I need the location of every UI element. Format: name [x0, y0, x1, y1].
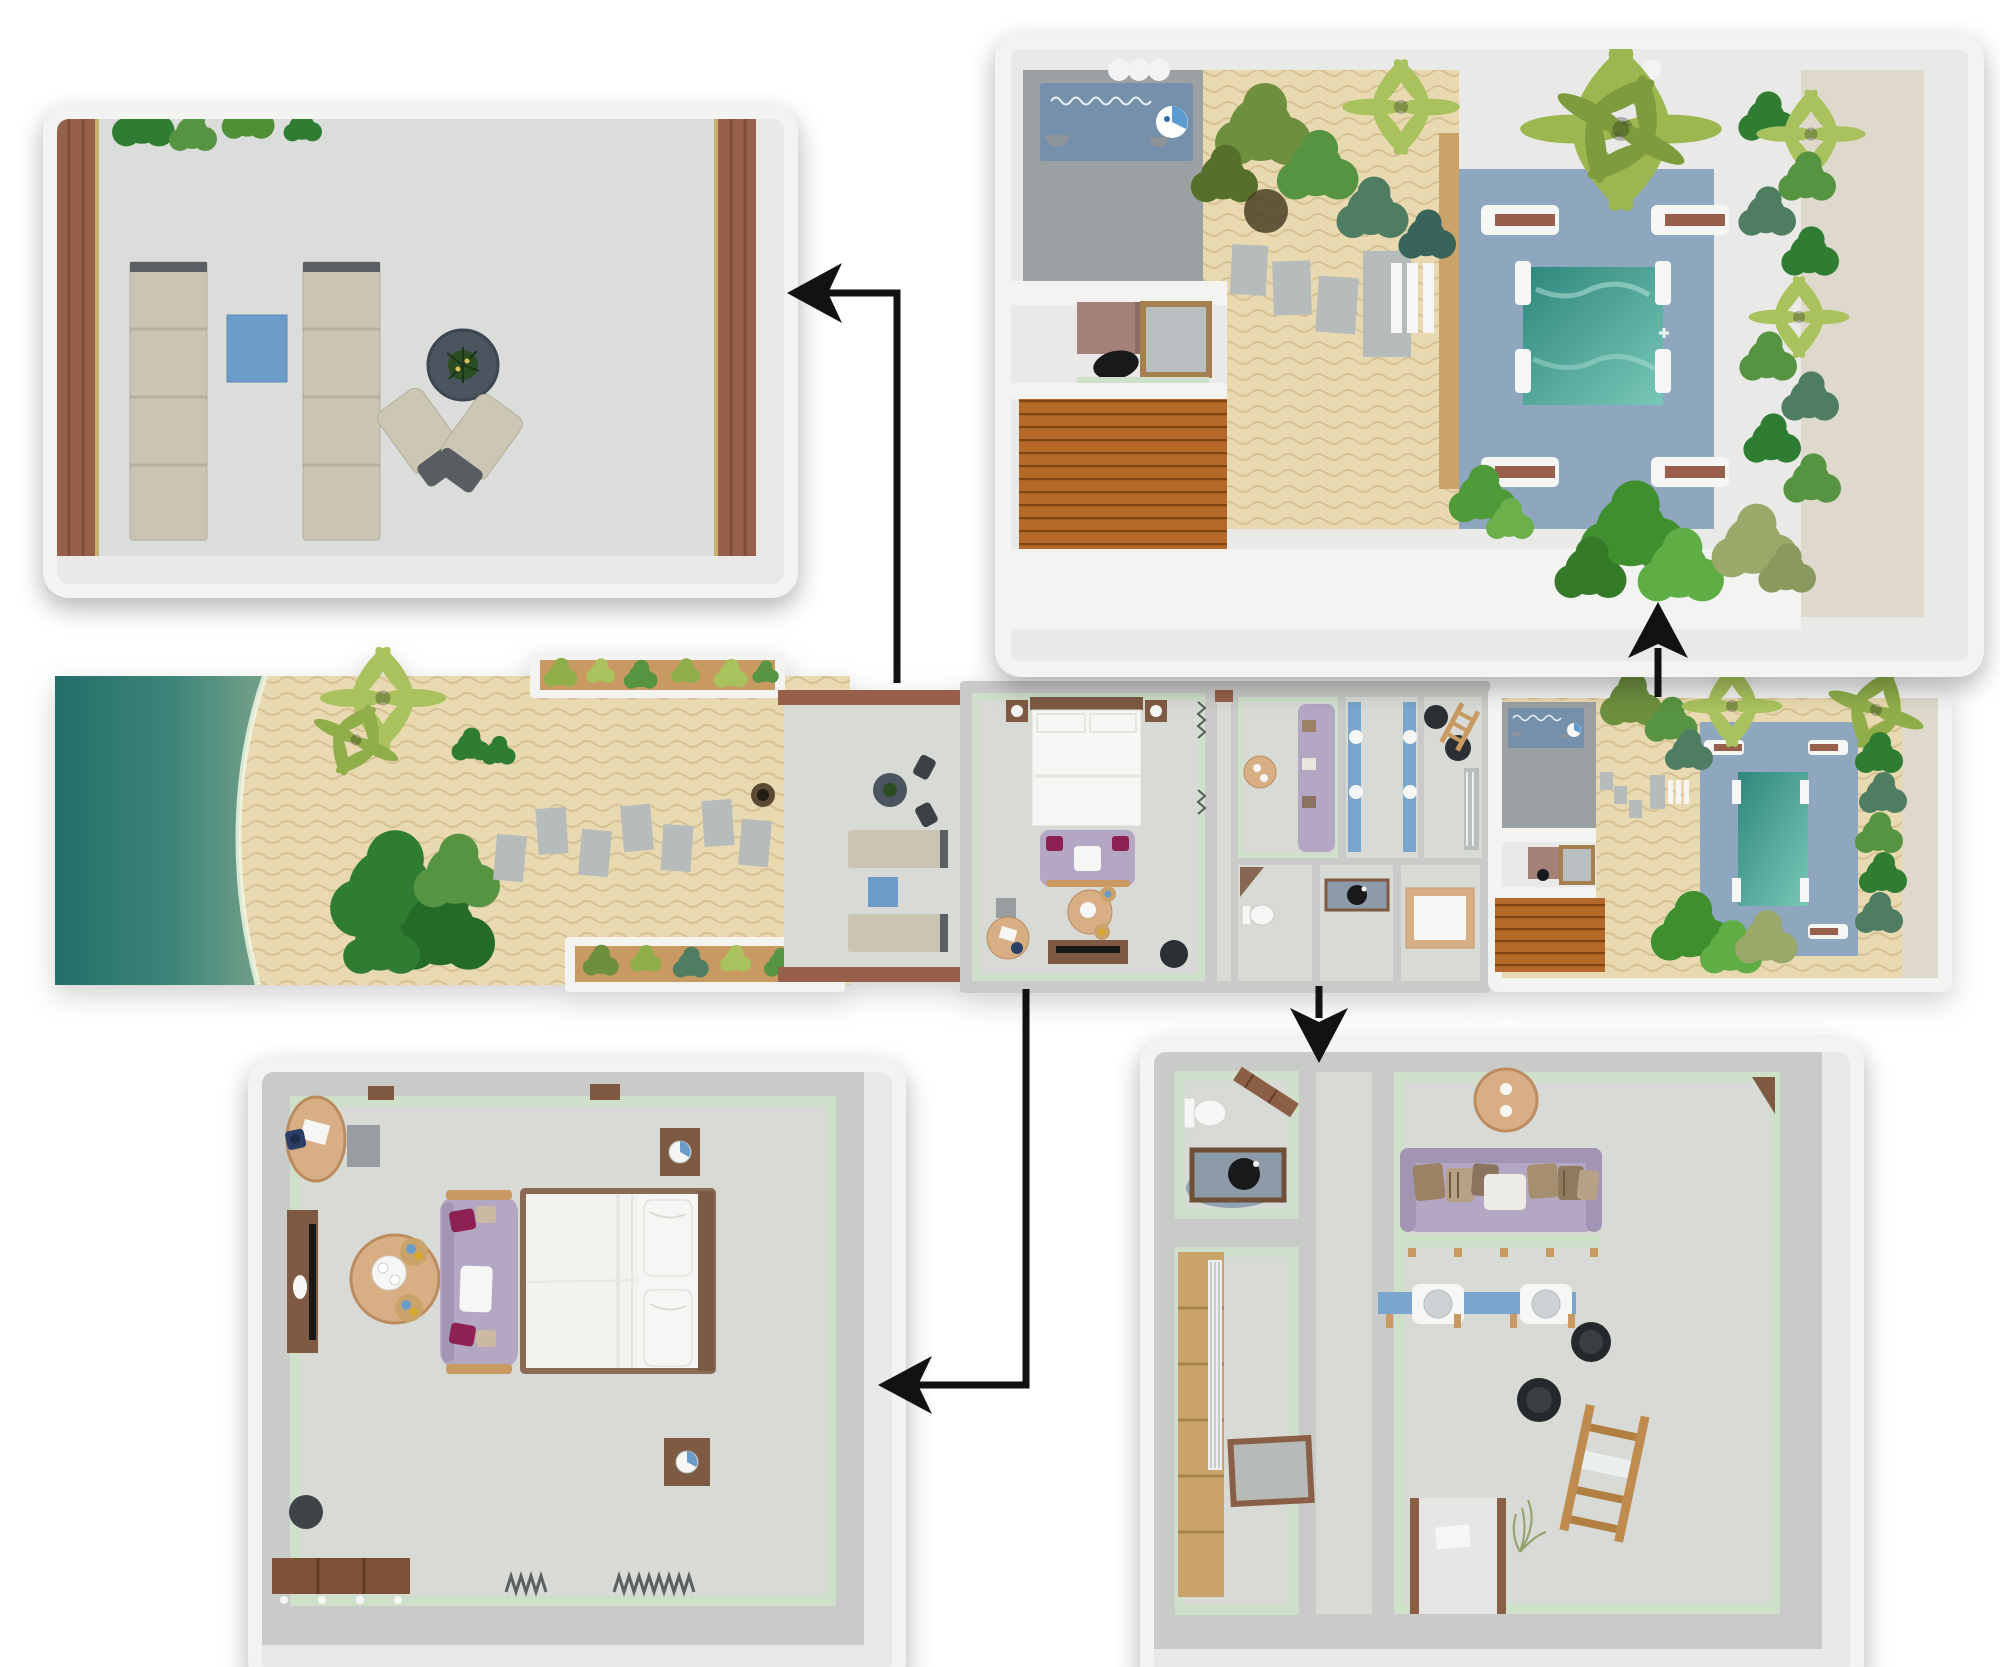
pillow [644, 1200, 692, 1276]
outdoor-rug [1508, 708, 1584, 748]
beach-terrace [778, 690, 962, 982]
courtyard-zone [1488, 651, 1952, 992]
corridor [1316, 1072, 1372, 1614]
floor-plan-diagram [0, 0, 2000, 1667]
dressing-room [1378, 1069, 1780, 1614]
terrace-detail-panel [43, 105, 798, 598]
door-mat [1435, 1525, 1471, 1550]
pouf [289, 1495, 323, 1529]
sofa [1040, 830, 1135, 887]
sun-lounger [1481, 205, 1559, 235]
cabinet-room [1023, 302, 1227, 383]
dressing-zone [1238, 697, 1338, 858]
bedroom-zone [972, 693, 1205, 981]
bathroom-detail-panel [1140, 1038, 1864, 1667]
tv [309, 1224, 316, 1340]
toilet-room [1176, 1067, 1299, 1218]
pillow [644, 1290, 692, 1366]
double-bed [520, 1188, 716, 1374]
stool-zone [1424, 697, 1482, 858]
sofa [440, 1190, 518, 1374]
nightstand [660, 1128, 700, 1176]
headboard [698, 1191, 714, 1371]
blue-side-table [227, 315, 287, 382]
toilet-zone [1238, 865, 1312, 981]
vanity-zone [1346, 697, 1418, 858]
pool-deck [1459, 169, 1729, 529]
floor-mat [1230, 1438, 1311, 1504]
toilet [1184, 1098, 1195, 1128]
tv-console [287, 1210, 318, 1353]
window [1143, 304, 1209, 375]
daybed-sofa [1400, 1148, 1602, 1232]
outdoor-rug [1040, 83, 1193, 161]
storage-box [347, 1125, 380, 1167]
round-table-with-plant [428, 330, 498, 400]
wood-deck [1019, 399, 1227, 549]
sun-lounger [1651, 457, 1729, 487]
bench-zone [1401, 865, 1480, 981]
bedroom-detail-panel [248, 1058, 906, 1667]
arrow-terrace [787, 263, 897, 683]
sun-lounger [303, 262, 380, 540]
villa-plan-strip [40, 640, 1990, 1005]
sun-lounger [130, 262, 207, 540]
fire-bowl [751, 783, 775, 807]
white-loungers [1391, 263, 1434, 333]
coffee-table [351, 1235, 439, 1323]
courtyard-detail-panel [995, 33, 1984, 677]
entry-passage [1410, 1498, 1506, 1614]
indoor-block [960, 681, 1490, 993]
side-table [868, 877, 898, 907]
planter-box-top [530, 652, 785, 698]
nightstand [664, 1438, 710, 1486]
wood-deck [1495, 898, 1605, 972]
round-table [1475, 1069, 1537, 1131]
shower-zone [1320, 865, 1393, 981]
sun-lounger [1651, 205, 1729, 235]
wardrobe-room [1176, 1248, 1312, 1614]
